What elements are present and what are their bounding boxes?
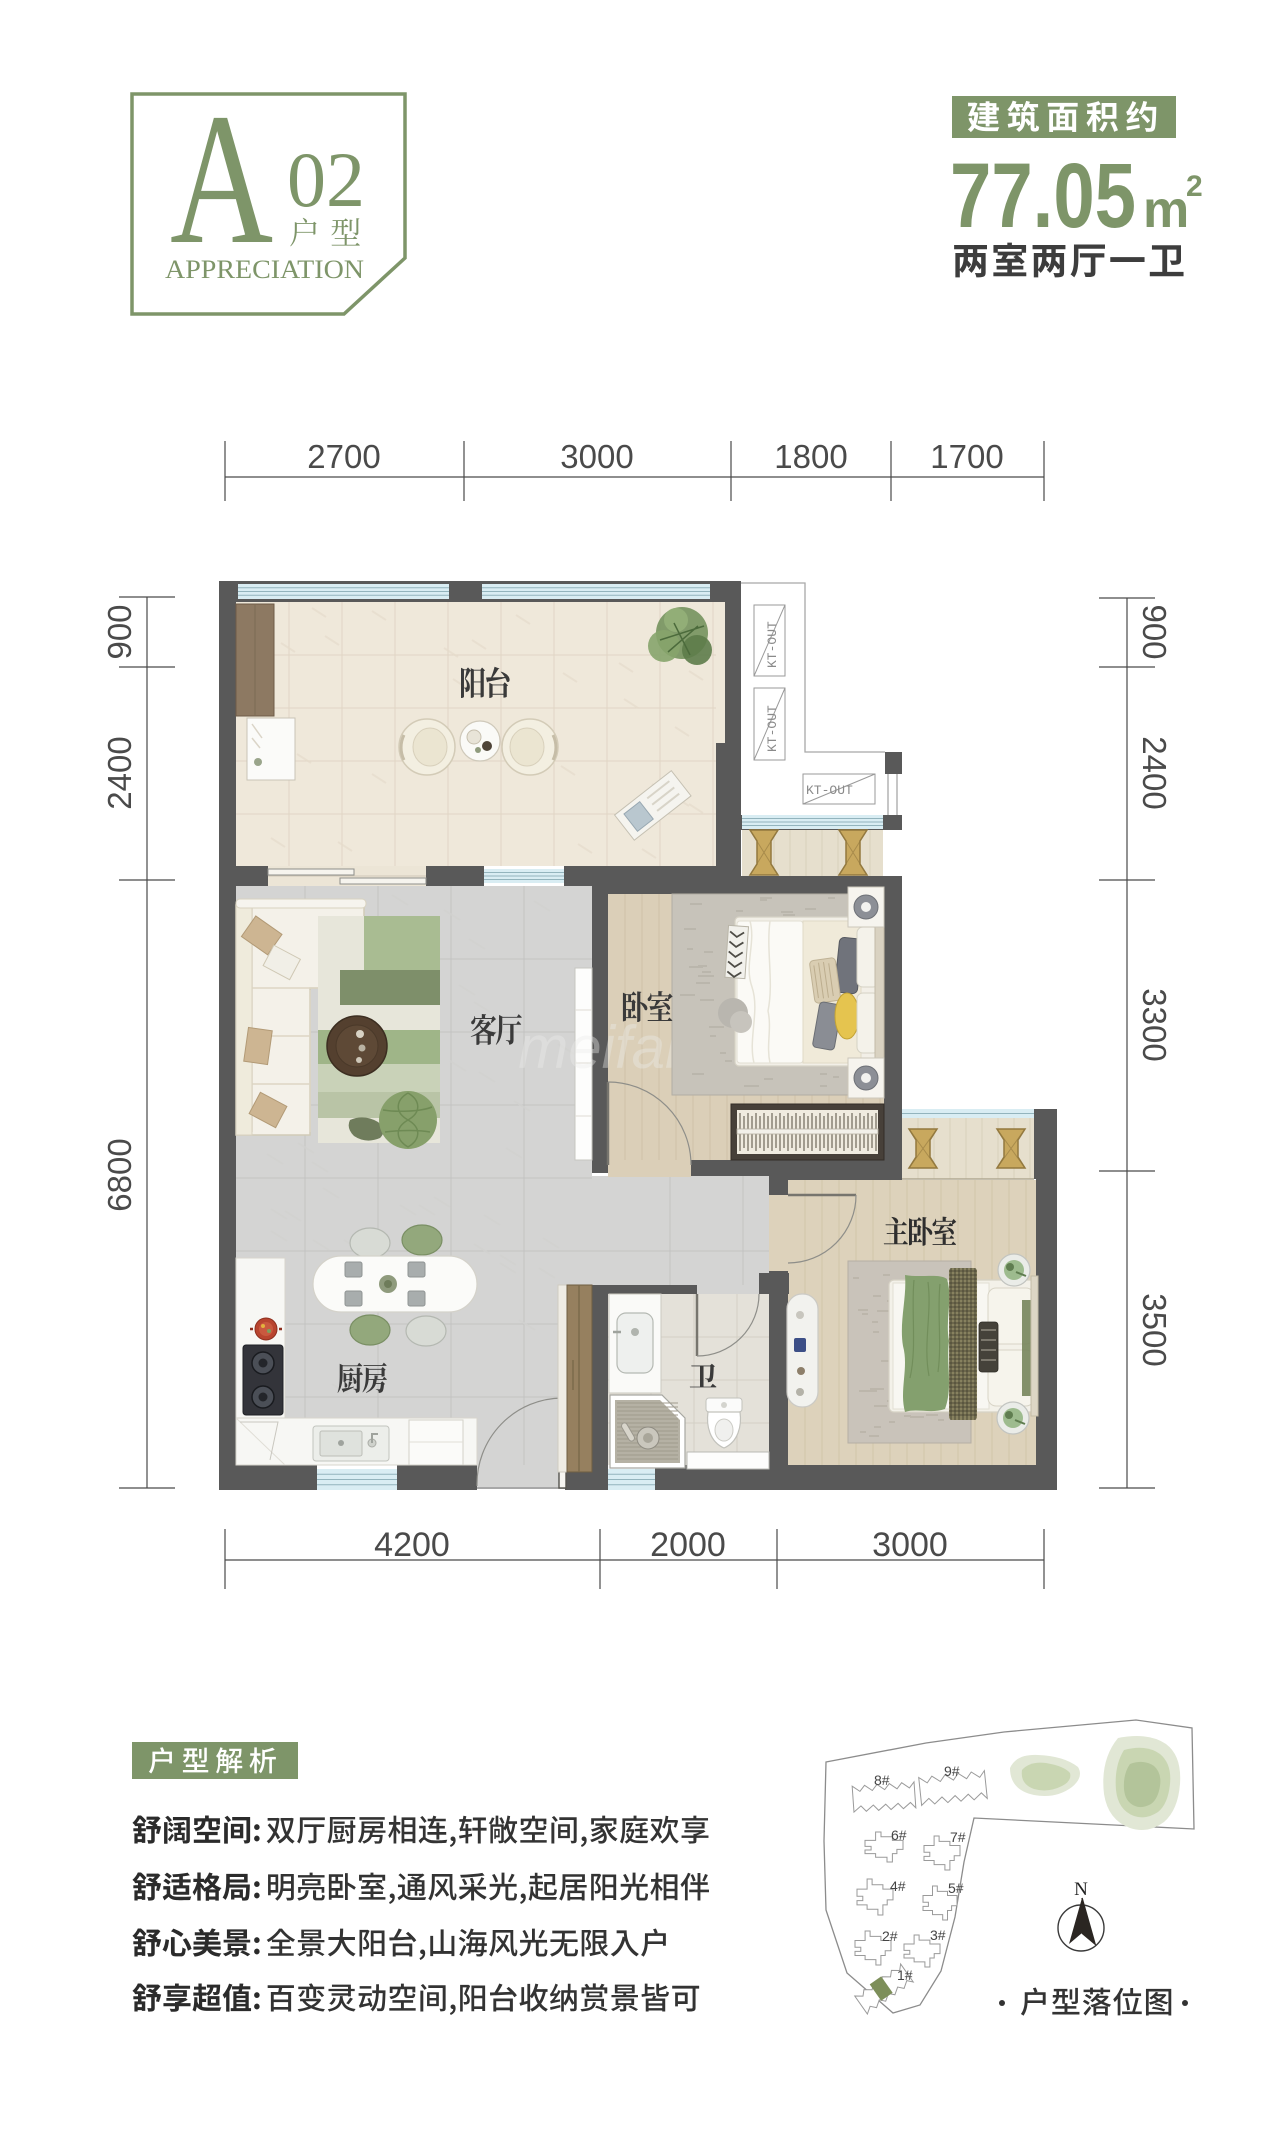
svg-text:KT-OUT: KT-OUT xyxy=(806,783,853,798)
svg-text:4#: 4# xyxy=(890,1878,906,1894)
svg-text:3#: 3# xyxy=(930,1927,946,1943)
svg-text:m: m xyxy=(1143,181,1189,239)
svg-text:9#: 9# xyxy=(944,1763,960,1779)
svg-text:N: N xyxy=(1074,1879,1088,1900)
svg-text:KT-OUT: KT-OUT xyxy=(765,705,780,752)
svg-text:4200: 4200 xyxy=(374,1526,450,1564)
svg-text:3000: 3000 xyxy=(560,438,633,475)
svg-text:2: 2 xyxy=(1186,170,1203,203)
svg-text:900: 900 xyxy=(101,604,138,659)
svg-text:8#: 8# xyxy=(874,1772,890,1788)
svg-text:3000: 3000 xyxy=(872,1526,948,1564)
svg-text:1700: 1700 xyxy=(930,438,1003,475)
svg-text:02: 02 xyxy=(287,136,365,223)
svg-text:KT-OUT: KT-OUT xyxy=(765,621,780,668)
svg-text:APPRECIATION: APPRECIATION xyxy=(165,255,364,284)
svg-text:2000: 2000 xyxy=(650,1526,726,1564)
svg-text:900: 900 xyxy=(1136,604,1173,659)
svg-text:77.05: 77.05 xyxy=(950,145,1136,247)
svg-text:1#: 1# xyxy=(897,1967,913,1983)
svg-text:5#: 5# xyxy=(948,1880,964,1896)
svg-text:3300: 3300 xyxy=(1136,988,1173,1061)
svg-text:2#: 2# xyxy=(882,1928,898,1944)
svg-text:1800: 1800 xyxy=(774,438,847,475)
svg-text:3500: 3500 xyxy=(1136,1293,1173,1366)
svg-text:2700: 2700 xyxy=(307,438,380,475)
svg-text:7#: 7# xyxy=(950,1829,966,1845)
svg-text:6#: 6# xyxy=(891,1827,907,1843)
svg-text:2400: 2400 xyxy=(101,736,138,809)
svg-text:2400: 2400 xyxy=(1136,736,1173,809)
svg-text:A: A xyxy=(170,75,273,283)
svg-text:6800: 6800 xyxy=(101,1138,138,1211)
